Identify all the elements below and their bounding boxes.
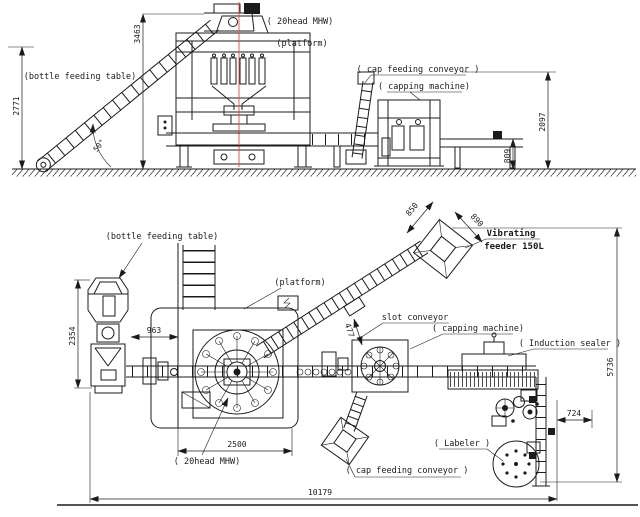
label-bottle-feeding-table-plan: (bottle feeding table) bbox=[106, 232, 219, 278]
svg-text:( cap feeding conveyor ): ( cap feeding conveyor ) bbox=[346, 466, 469, 476]
dim-477-text: 477 bbox=[343, 322, 356, 339]
technical-drawing: 2771 50° (bottle feeding table) bbox=[0, 0, 640, 517]
dim-left-height: 2771 bbox=[8, 47, 34, 169]
filler-bottles bbox=[211, 54, 265, 84]
label-20head-elev: ( 20head MHW) bbox=[267, 17, 334, 27]
svg-text:( 20head MHW): ( 20head MHW) bbox=[174, 457, 241, 467]
plan-view: (bottle feeding table) 2354 bbox=[57, 201, 638, 505]
dim-2500-text: 2500 bbox=[227, 440, 246, 449]
svg-text:( Induction sealer ): ( Induction sealer ) bbox=[519, 339, 621, 349]
label-vibrating-feeder: Vibrating feeder 150L bbox=[465, 228, 544, 252]
label-capping-machine-plan: ( capping machine) bbox=[410, 324, 524, 349]
svg-text:(platform): (platform) bbox=[274, 278, 325, 288]
label-cap-feeding-conveyor-plan: ( cap feeding conveyor ) bbox=[346, 459, 469, 477]
cap-feeding-conveyor-plan bbox=[321, 392, 368, 465]
dim-platform-width: 2500 bbox=[178, 428, 292, 456]
svg-text:Vibrating: Vibrating bbox=[487, 228, 536, 239]
label-platform-plan: (platform) bbox=[244, 278, 326, 309]
lightning-icon bbox=[284, 298, 290, 308]
dim-feeder-side-a: 850 bbox=[404, 201, 433, 233]
incline-conveyor: 50° bbox=[34, 3, 260, 175]
svg-text:( capping machine): ( capping machine) bbox=[432, 324, 524, 334]
dim-outfeed-offset: 724 bbox=[557, 400, 592, 501]
dim-3463-text: 3463 bbox=[133, 24, 142, 43]
svg-text:( cap feeding conveyor ): ( cap feeding conveyor ) bbox=[357, 65, 480, 75]
dim-963-text: 963 bbox=[147, 326, 162, 335]
label-capping-machine-elev: ( capping machine) bbox=[378, 82, 470, 100]
label-platform-elev: (platform) bbox=[276, 39, 327, 49]
dim-890-text: 890 bbox=[469, 212, 485, 229]
svg-text:slot conveyor: slot conveyor bbox=[382, 313, 449, 323]
drawing-canvas: 2771 50° (bottle feeding table) bbox=[0, 0, 640, 517]
dim-850-text: 850 bbox=[404, 201, 420, 218]
svg-text:( Labeler ): ( Labeler ) bbox=[434, 439, 490, 449]
labeler-plan bbox=[492, 390, 540, 487]
dim-724-text: 724 bbox=[567, 409, 582, 418]
dim-discharge-height: 809 bbox=[503, 139, 513, 169]
dim-2771-text: 2771 bbox=[12, 96, 21, 115]
output-conveyor-plan bbox=[529, 377, 555, 486]
dim-feeder-side-b: 890 bbox=[455, 212, 485, 242]
svg-text:(bottle feeding table): (bottle feeding table) bbox=[106, 232, 219, 242]
bottle-feeder-plan bbox=[88, 278, 128, 393]
label-induction-sealer: ( Induction sealer ) bbox=[508, 339, 621, 356]
dim-feeder-gap: 963 bbox=[131, 326, 178, 337]
svg-text:feeder 150L: feeder 150L bbox=[484, 242, 544, 252]
dim-10179-text: 10179 bbox=[308, 488, 332, 497]
cap-feeding-conveyor-elev bbox=[346, 72, 374, 164]
svg-text:( capping machine): ( capping machine) bbox=[378, 82, 470, 92]
dim-5736-text: 5736 bbox=[606, 357, 615, 376]
dim-2097-text: 2097 bbox=[538, 112, 547, 131]
platform-plan bbox=[151, 243, 298, 428]
label-bottle-feeding-table-elev: (bottle feeding table) bbox=[24, 72, 137, 82]
label-labeler: ( Labeler ) bbox=[434, 439, 503, 461]
incline-angle-text: 50° bbox=[91, 137, 106, 153]
capping-machine-elev bbox=[374, 100, 444, 166]
elevation-view: 2771 50° (bottle feeding table) bbox=[8, 2, 636, 177]
vibrating-feeder bbox=[414, 220, 473, 279]
ground-line bbox=[12, 169, 636, 177]
dim-809-text: 809 bbox=[503, 149, 512, 164]
dim-2354-text: 2354 bbox=[68, 326, 77, 345]
conveyor-head bbox=[204, 3, 260, 31]
